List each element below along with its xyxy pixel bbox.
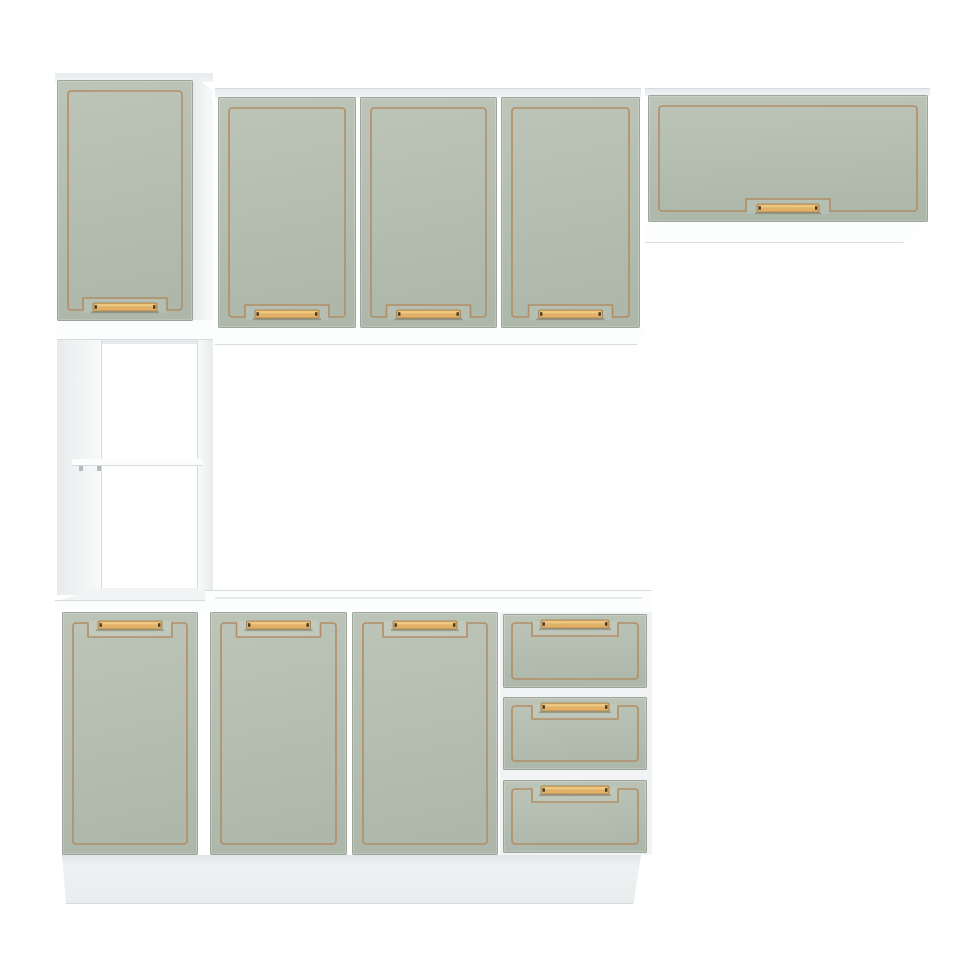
- drawer-front-3-handle: [539, 786, 611, 796]
- base-door-1-handle: [96, 621, 164, 631]
- upper-door-2: [360, 97, 497, 328]
- drawer-front-1: [503, 614, 647, 688]
- drawer-front-1-handle: [539, 620, 611, 630]
- base-top-panel: [205, 590, 652, 612]
- base-door-3-face: [353, 613, 498, 855]
- upper-door-3-handle: [537, 310, 605, 320]
- shelf-support-right: [97, 466, 101, 471]
- drawer-front-2-handle: [539, 703, 611, 713]
- base-door-2-face: [211, 613, 347, 855]
- upper-door-1-handle: [253, 310, 321, 320]
- upper-door-3-face: [502, 98, 640, 328]
- upper-door-3: [501, 97, 640, 328]
- tall-upper-door-face: [58, 81, 193, 321]
- open-shelf: [72, 459, 202, 466]
- base-door-2: [210, 612, 347, 855]
- plinth: [62, 855, 641, 904]
- wall-cabinet-bottom-panel: [645, 222, 930, 243]
- wall-flip-door: [648, 95, 928, 222]
- tall-base-top-panel: [55, 600, 213, 612]
- base-top-inner-edge: [215, 597, 642, 599]
- niche-top-shadow: [102, 340, 197, 344]
- kitchen-cabinet-product-image: [0, 0, 975, 975]
- shelf-support-left: [79, 466, 83, 471]
- tall-upper-door-handle: [91, 303, 159, 313]
- base-door-3-handle: [391, 621, 459, 631]
- tall-cabinet-side-panel: [193, 75, 213, 340]
- drawer-front-2: [503, 697, 647, 770]
- upper-row-bottom-panel: [215, 328, 645, 345]
- upper-door-1-face: [219, 98, 356, 328]
- upper-door-2-face: [361, 98, 497, 328]
- upper-door-2-handle: [395, 310, 463, 320]
- niche-right-wall: [197, 340, 213, 595]
- tall-upper-bottom-panel: [57, 320, 213, 340]
- tall-upper-door: [57, 80, 193, 321]
- drawer-front-3: [503, 780, 647, 853]
- base-door-1-face: [63, 613, 198, 855]
- base-door-3: [352, 612, 498, 855]
- wall-flip-door-handle: [755, 204, 821, 214]
- base-door-2-handle: [245, 621, 313, 631]
- base-door-1: [62, 612, 198, 855]
- upper-door-1: [218, 97, 356, 328]
